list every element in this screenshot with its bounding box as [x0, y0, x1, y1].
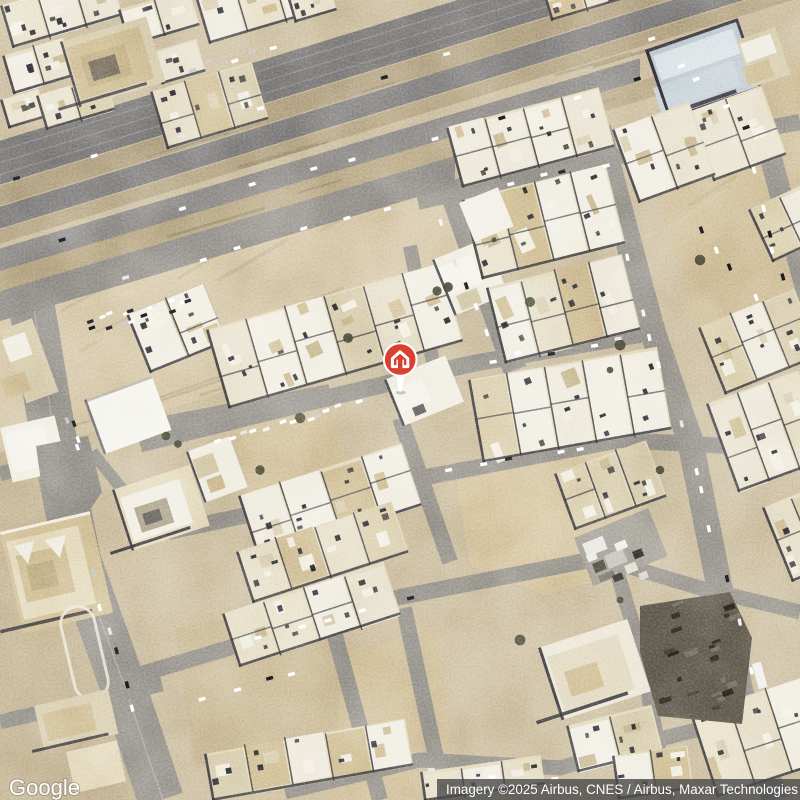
- svg-text:Imagery ©2025 Airbus, CNES / A: Imagery ©2025 Airbus, CNES / Airbus, Max…: [446, 782, 798, 797]
- svg-text:Google: Google: [9, 775, 80, 800]
